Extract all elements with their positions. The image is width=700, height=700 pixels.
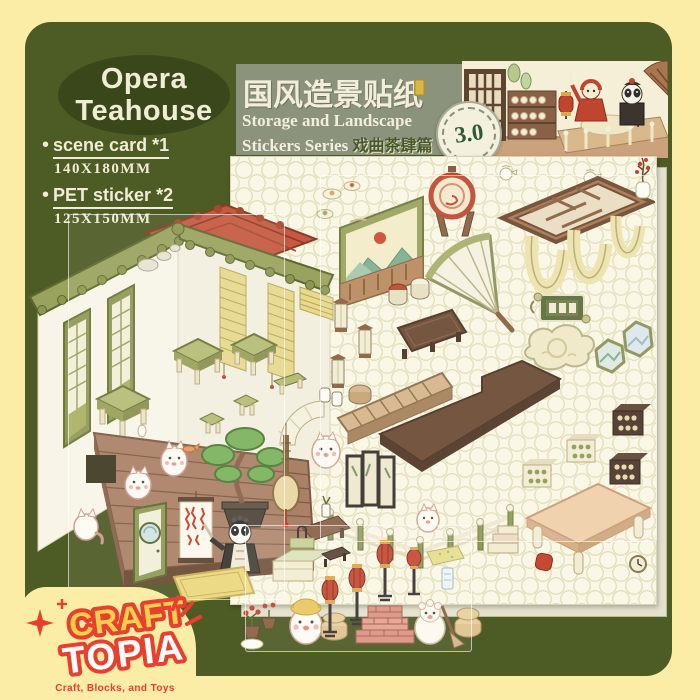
tea-jar-shelf-icon xyxy=(508,91,556,139)
product-title-ellipse: Opera Teahouse xyxy=(58,55,230,135)
series-title-chinese: 国风造景贴纸 xyxy=(243,70,458,114)
spec-label: scene card *1 xyxy=(53,135,169,159)
pet-sheet-main xyxy=(320,175,657,542)
product-title-line1: Opera xyxy=(101,63,187,95)
brand-logo-blob: CRAFT TOPIA Craft, Blocks, and Toys xyxy=(20,587,196,700)
product-title-line2: Teahouse xyxy=(75,95,212,127)
bullet-icon: • xyxy=(42,134,49,156)
clock-sticker xyxy=(630,556,646,572)
spec-item-scene-card: •scene card *1 140X180MM xyxy=(42,134,173,178)
brand-tagline: Craft, Blocks, and Toys xyxy=(20,683,210,694)
seal-stamp-icon xyxy=(414,79,425,96)
series-subtitle-chinese: 戏曲茶肆篇 xyxy=(352,136,432,155)
series-subtitle-line2: Stickers Series 戏曲茶肆篇 xyxy=(242,132,433,156)
pet-sheet-bottom xyxy=(245,525,472,652)
series-subtitle-line1: Storage and Landscape xyxy=(242,111,412,131)
series-subtitle-english: Stickers Series xyxy=(242,136,348,155)
spec-size: 140X180MM xyxy=(54,161,173,178)
product-promo-image: 国风造景贴纸 Storage and Landscape Stickers Se… xyxy=(0,0,700,700)
brand-logo: CRAFT TOPIA xyxy=(18,591,218,691)
red-cushion-sticker xyxy=(535,553,554,572)
sparkle-star-icon xyxy=(26,599,67,637)
